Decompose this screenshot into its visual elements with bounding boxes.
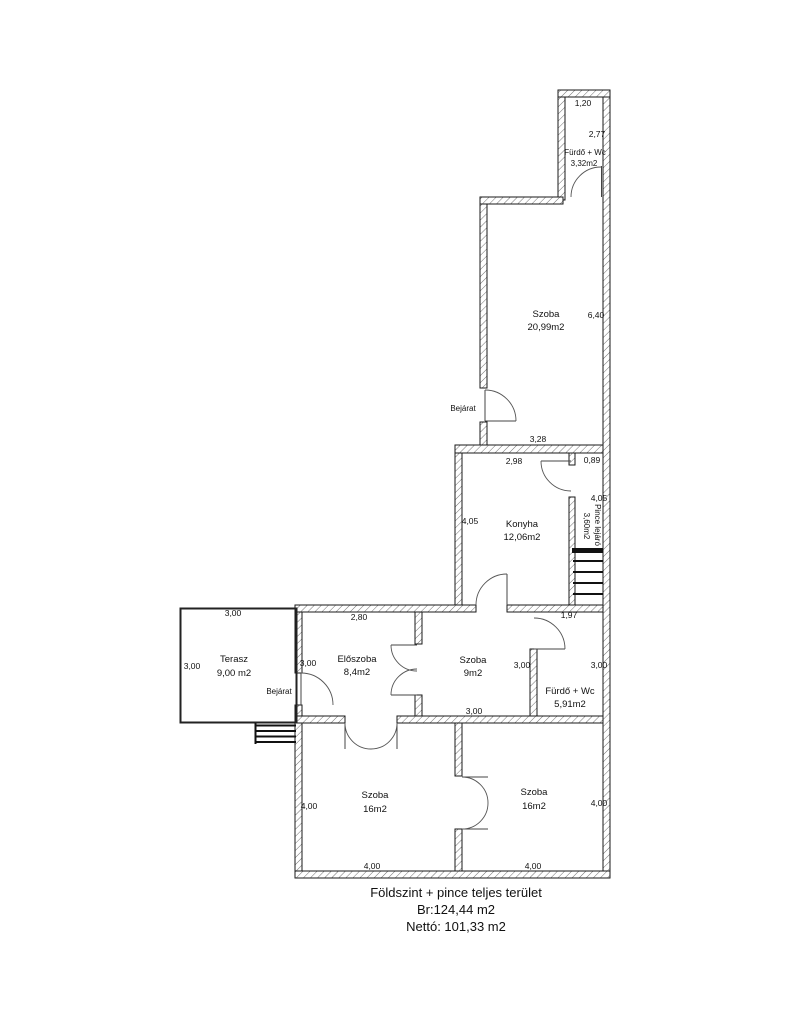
area-room16-right: 16m2 bbox=[522, 801, 546, 812]
room-label-kitchen: Konyha bbox=[506, 519, 539, 530]
dim-room9-width: 3,00 bbox=[466, 706, 483, 716]
dim-bathroom-top-height: 2,77 bbox=[589, 129, 606, 139]
room-label-bathroom-main: Fürdő + Wc bbox=[545, 686, 595, 697]
room-label-room16-right: Szoba bbox=[521, 787, 549, 798]
dim-bathroom-main-width: 1,97 bbox=[561, 610, 578, 620]
doors bbox=[301, 166, 602, 829]
floor-plan-page: 1,20 2,77 Fürdő + Wc 3,32m2 Szoba 20,99m… bbox=[0, 0, 791, 1024]
dim-bathroom-top-width: 1,20 bbox=[575, 98, 592, 108]
area-kitchen: 12,06m2 bbox=[504, 532, 541, 543]
caption-gross-area: Br:124,44 m2 bbox=[417, 902, 495, 917]
labels: 1,20 2,77 Fürdő + Wc 3,32m2 Szoba 20,99m… bbox=[184, 98, 608, 934]
area-room9: 9m2 bbox=[464, 668, 482, 679]
dim-basement-width: 0,89 bbox=[584, 455, 601, 465]
caption-title: Földszint + pince teljes terület bbox=[370, 885, 542, 900]
floor-plan-drawing: 1,20 2,77 Fürdő + Wc 3,32m2 Szoba 20,99m… bbox=[0, 0, 791, 1024]
dim-room9-height: 3,00 bbox=[514, 660, 531, 670]
room-label-room9: Szoba bbox=[460, 655, 488, 666]
area-room16-left: 16m2 bbox=[363, 804, 387, 815]
dim-room16-right-width: 4,00 bbox=[525, 861, 542, 871]
room-label-bathroom-top: Fürdő + Wc bbox=[564, 148, 606, 157]
room-label-room16-left: Szoba bbox=[362, 790, 390, 801]
dim-room16-left-width: 4,00 bbox=[364, 861, 381, 871]
room-label-terrace: Terasz bbox=[220, 654, 248, 665]
room-label-hallway: Előszoba bbox=[337, 654, 377, 665]
dim-hallway-height: 3,00 bbox=[300, 658, 317, 668]
area-bathroom-main: 5,91m2 bbox=[554, 699, 586, 710]
area-basement: 3,60m2 bbox=[582, 513, 591, 540]
walls bbox=[295, 90, 610, 878]
room-label-living: Szoba bbox=[533, 309, 561, 320]
area-bathroom-top: 3,32m2 bbox=[571, 159, 598, 168]
caption-net-area: Nettó: 101,33 m2 bbox=[406, 919, 506, 934]
area-hallway: 8,4m2 bbox=[344, 667, 370, 678]
dim-kitchen-height: 4,05 bbox=[462, 516, 479, 526]
dim-living-width: 3,28 bbox=[530, 434, 547, 444]
dim-terrace-height: 3,00 bbox=[184, 661, 201, 671]
dim-kitchen-width: 2,98 bbox=[506, 456, 523, 466]
terrace-steps bbox=[255, 723, 296, 744]
dim-room16-left-height: 4,00 bbox=[301, 801, 318, 811]
basement-stairs bbox=[572, 548, 603, 594]
dim-hallway-width: 2,80 bbox=[351, 612, 368, 622]
dim-room16-right-height: 4,00 bbox=[591, 798, 608, 808]
dim-terrace-width: 3,00 bbox=[225, 608, 242, 618]
dim-bathroom-main-height: 3,00 bbox=[591, 660, 608, 670]
room-label-basement: Pince lejáró bbox=[593, 504, 602, 546]
entrance-label-living: Bejárat bbox=[450, 404, 476, 413]
area-living: 20,99m2 bbox=[528, 322, 565, 333]
entrance-label-terrace: Bejárat bbox=[266, 687, 292, 696]
dim-living-height: 6,40 bbox=[588, 310, 605, 320]
area-terrace: 9,00 m2 bbox=[217, 668, 251, 679]
dim-basement-height: 4,05 bbox=[591, 493, 608, 503]
